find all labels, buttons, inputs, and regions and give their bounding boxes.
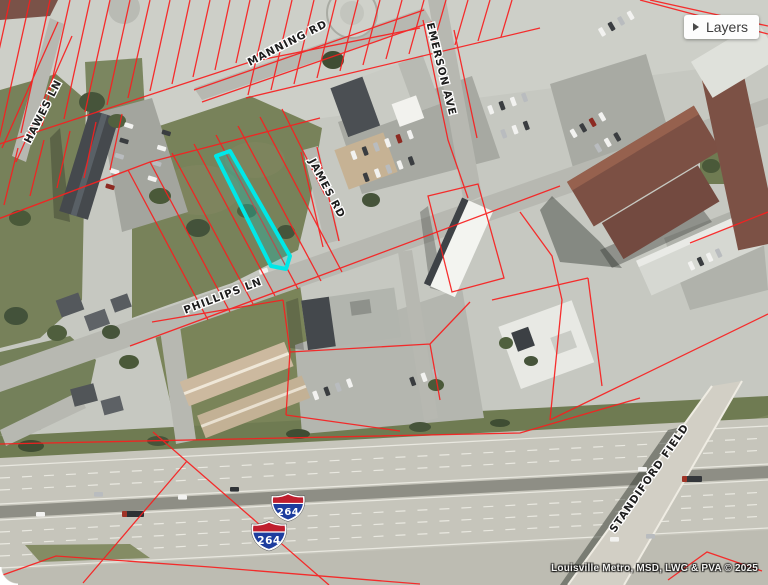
- map-attribution: Louisville Metro, MSD, LWC & PVA © 2025: [551, 563, 758, 574]
- aerial-imagery: [0, 0, 768, 585]
- layers-button[interactable]: Layers: [684, 15, 759, 39]
- shield-route-number: 264: [277, 507, 299, 518]
- layers-button-label: Layers: [706, 19, 748, 35]
- map-canvas[interactable]: MANNING RD EMERSON AVE HAWES LN JAMES RD…: [0, 0, 768, 585]
- rounded-corner-mask: [0, 567, 18, 585]
- shield-route-number: 264: [257, 535, 280, 547]
- chevron-right-icon: [693, 23, 699, 31]
- map-viewport[interactable]: MANNING RD EMERSON AVE HAWES LN JAMES RD…: [0, 0, 768, 585]
